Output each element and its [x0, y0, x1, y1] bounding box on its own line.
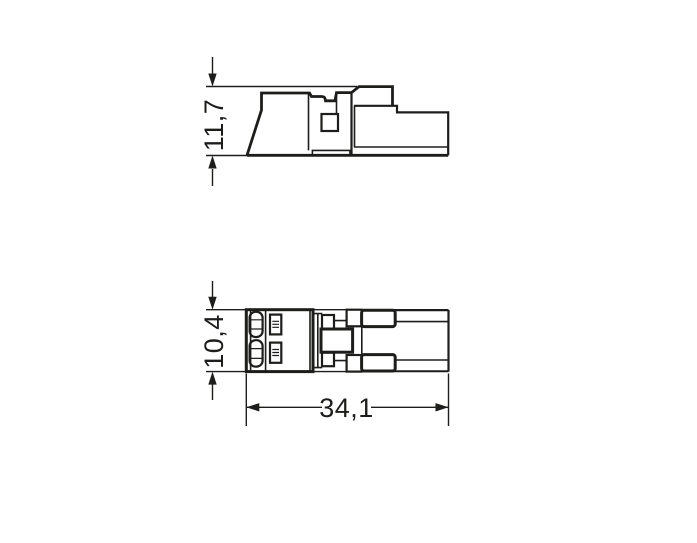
- wire-slot-detail-lines: [272, 321, 279, 355]
- arrow-down-icon: [208, 74, 216, 87]
- latch-window: [322, 114, 339, 131]
- arrow-up-icon: [208, 372, 216, 385]
- prong-top: [362, 310, 396, 326]
- prong-bottom: [362, 355, 396, 371]
- push-button-detail-lines: [251, 320, 262, 359]
- arrow-left-icon: [246, 403, 259, 411]
- connector-dimension-drawing: 11,7 10,4 34,1: [0, 0, 697, 543]
- latch-tab-left-bottom: [322, 353, 334, 367]
- latch-center-clamp: [321, 329, 353, 352]
- push-button-2: [250, 340, 263, 366]
- arrow-right-icon: [436, 403, 449, 411]
- side-view-extension-lines: [206, 87, 448, 156]
- arrow-up-icon: [208, 156, 216, 169]
- side-height-dimension-label: 11,7: [199, 99, 229, 152]
- latch-tab-right-top: [347, 310, 362, 327]
- push-button-1: [250, 312, 263, 337]
- housing-outline: [247, 87, 393, 156]
- latch-link-lines: [334, 321, 347, 361]
- latch-tab-left-top: [322, 315, 334, 329]
- latch-tab-right-bottom: [347, 355, 362, 372]
- technical-drawing-canvas: 11,7 10,4 34,1: [0, 0, 697, 543]
- top-height-dimension-label: 10,4: [199, 314, 229, 369]
- top-view-extension-lines: [206, 310, 449, 372]
- length-dimension-label: 34,1: [319, 393, 374, 423]
- side-view: [206, 57, 448, 186]
- arrow-down-icon: [208, 297, 216, 310]
- mating-end-outline: [354, 106, 448, 156]
- shroud-wall-lines: [395, 310, 448, 371]
- housing-inner-edges: [309, 93, 351, 155]
